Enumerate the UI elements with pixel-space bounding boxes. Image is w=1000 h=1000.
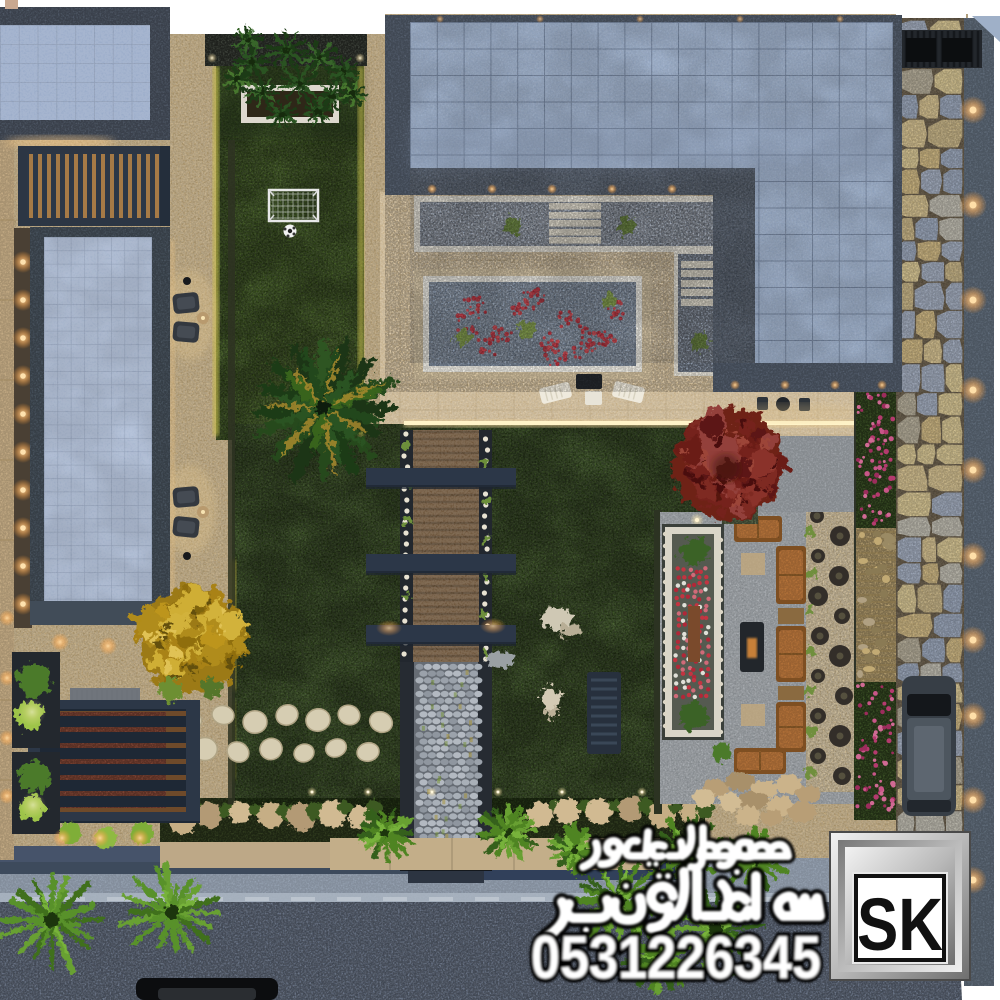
svg-text:0531226345: 0531226345: [531, 924, 821, 991]
svg-text:SK: SK: [857, 883, 943, 966]
